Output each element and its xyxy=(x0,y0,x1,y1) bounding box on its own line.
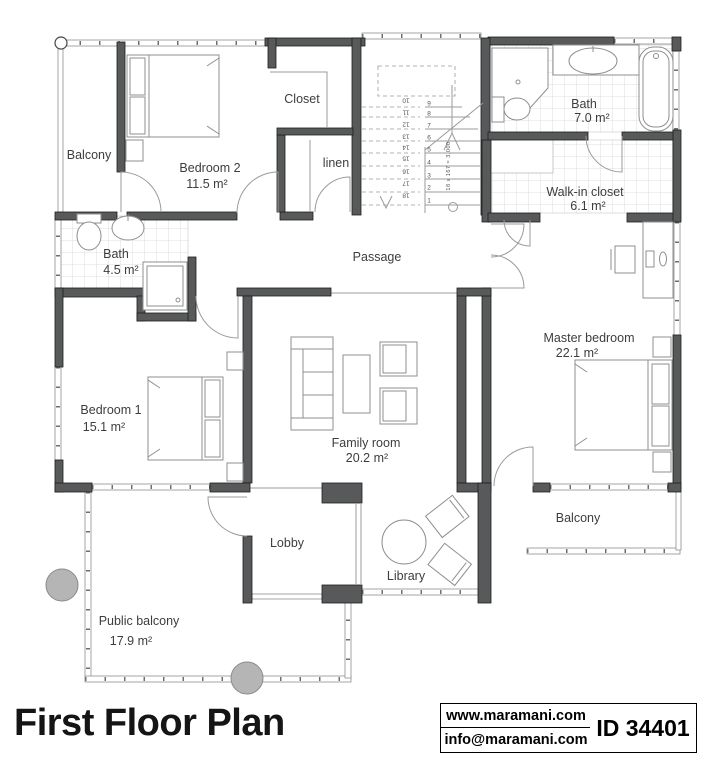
toilet-icon xyxy=(492,97,504,122)
floor-plan-page: Balcony Bedroom 2 11.5 m² Closet linen B… xyxy=(0,0,726,771)
stair-step-number: 2 xyxy=(427,185,431,192)
page-title: First Floor Plan xyxy=(14,702,285,745)
room-area-family-room: 20.2 m² xyxy=(346,452,388,465)
stair-step-number: 13 xyxy=(402,133,409,140)
stair-step-number: 16 xyxy=(402,168,409,175)
sofa xyxy=(291,337,333,430)
bed-bedroom2 xyxy=(126,55,219,161)
staircase xyxy=(362,66,483,213)
plan-id-badge: ID 34401 xyxy=(590,703,697,753)
stair-step-number: 17 xyxy=(402,180,409,187)
stair-step-number: 3 xyxy=(427,173,431,180)
stair-step-number: 15 xyxy=(402,155,409,162)
room-label-bath-upper: Bath xyxy=(571,98,597,111)
stair-step-number: 18 xyxy=(402,192,409,199)
library-chair xyxy=(426,495,469,537)
stair-step-number: 10 xyxy=(402,97,409,104)
room-label-walkin: Walk-in closet xyxy=(546,186,623,199)
desk-master xyxy=(611,222,673,298)
room-area-bath-lower: 4.5 m² xyxy=(103,264,138,277)
email-link[interactable]: info@maramani.com xyxy=(441,728,591,752)
room-label-bedroom1: Bedroom 1 xyxy=(80,404,141,417)
room-label-balcony-right: Balcony xyxy=(556,512,600,525)
stair-step-number: 4 xyxy=(427,160,431,167)
stair-step-number: 14 xyxy=(402,144,409,151)
furniture xyxy=(126,55,673,585)
room-area-bedroom1: 15.1 m² xyxy=(83,421,125,434)
room-label-linen: linen xyxy=(323,157,349,170)
room-label-master: Master bedroom xyxy=(543,332,634,345)
coffee-table xyxy=(343,355,370,413)
room-label-family-room: Family room xyxy=(332,437,401,450)
stair-step-number: 8 xyxy=(427,111,431,118)
contact-box: www.maramani.com info@maramani.com xyxy=(440,703,592,753)
bathtub-icon xyxy=(639,47,673,131)
library-chair xyxy=(428,543,471,585)
balcony-column xyxy=(231,662,263,694)
room-label-bath-lower: Bath xyxy=(103,248,129,261)
shower-icon xyxy=(143,262,187,310)
stair-step-number: 12 xyxy=(402,121,409,128)
floor-plan-drawing xyxy=(0,0,726,771)
room-label-public-balcony: Public balcony xyxy=(99,615,180,628)
round-table xyxy=(382,520,426,564)
room-area-bath-upper: 7.0 m² xyxy=(574,112,609,125)
corner-post xyxy=(55,37,67,49)
stair-step-number: 7 xyxy=(427,123,431,130)
website-link[interactable]: www.maramani.com xyxy=(441,704,591,728)
stair-step-number: 5 xyxy=(427,147,431,154)
room-area-master: 22.1 m² xyxy=(556,347,598,360)
room-area-walkin: 6.1 m² xyxy=(570,200,605,213)
stair-step-number: 9 xyxy=(427,101,431,108)
room-label-library: Library xyxy=(387,570,425,583)
armchair xyxy=(380,388,417,424)
stair-step-number: 1 xyxy=(427,198,431,205)
room-label-closet: Closet xyxy=(284,93,319,106)
armchair xyxy=(380,342,417,376)
stair-step-number: 11 xyxy=(403,109,410,116)
room-label-lobby: Lobby xyxy=(270,537,304,550)
stair-step-number: 6 xyxy=(427,135,431,142)
balcony-column xyxy=(46,569,78,601)
room-label-balcony-top: Balcony xyxy=(67,149,111,162)
room-area-bedroom2: 11.5 m² xyxy=(186,178,227,191)
bed-bedroom1 xyxy=(148,352,243,481)
room-area-public-balcony: 17.9 m² xyxy=(110,635,152,648)
walkin-shelf xyxy=(491,140,553,173)
stair-dimension-note: 18 x 167 = 3,000 xyxy=(446,141,452,190)
room-label-passage: Passage xyxy=(353,251,402,264)
room-label-bedroom2: Bedroom 2 xyxy=(179,162,240,175)
